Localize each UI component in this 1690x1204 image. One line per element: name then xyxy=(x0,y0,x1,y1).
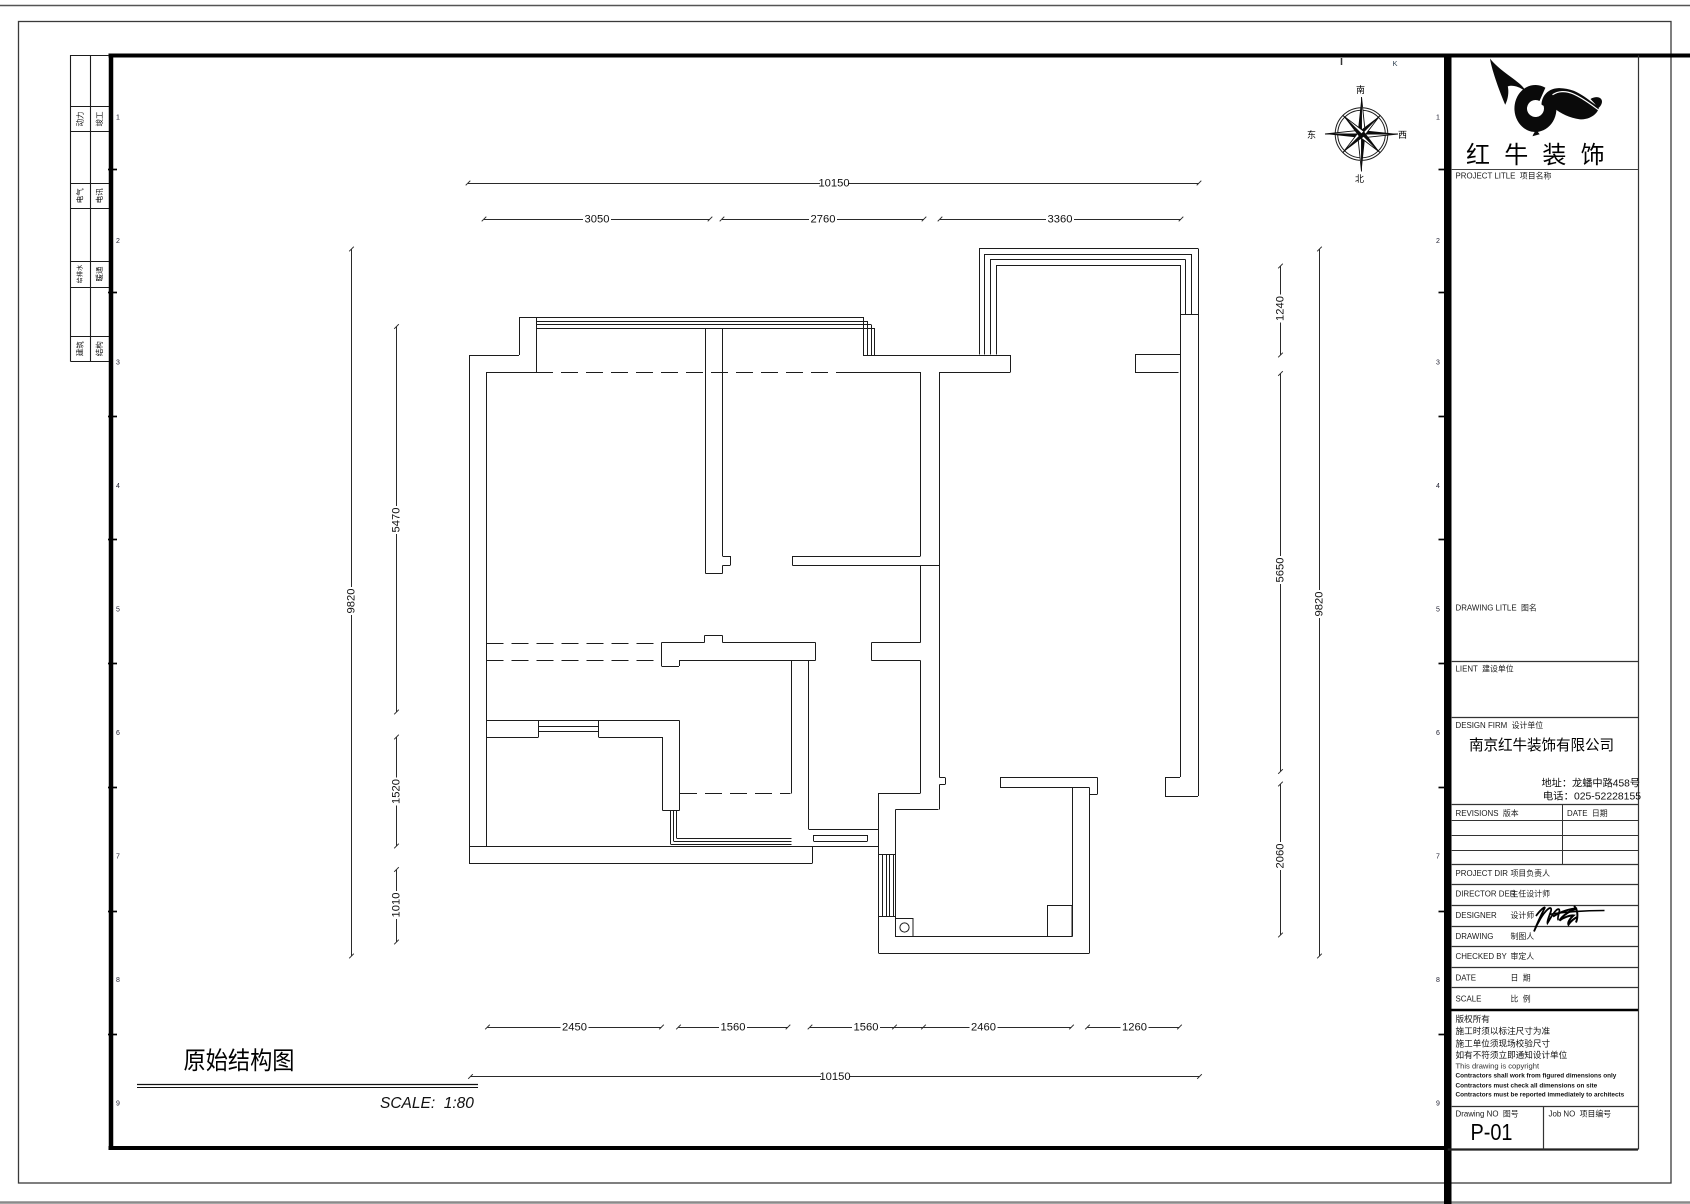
svg-text:制图人: 制图人 xyxy=(1511,931,1535,941)
svg-text:7: 7 xyxy=(116,854,120,861)
svg-text:给排水: 给排水 xyxy=(76,264,84,283)
svg-text:Drawing NO 图号: Drawing NO 图号 xyxy=(1456,1110,1519,1119)
svg-text:DRAWING: DRAWING xyxy=(1456,932,1494,941)
svg-text:9: 9 xyxy=(1436,1101,1440,1108)
svg-text:5: 5 xyxy=(1436,607,1440,614)
svg-text:Contractors must check all dim: Contractors must check all dimensions on… xyxy=(1456,1083,1598,1090)
svg-text:日 期: 日 期 xyxy=(1511,974,1531,983)
svg-text:8: 8 xyxy=(116,977,120,984)
svg-text:2760: 2760 xyxy=(811,214,836,226)
svg-text:2450: 2450 xyxy=(562,1022,587,1034)
svg-text:6: 6 xyxy=(116,730,120,737)
svg-text:9820: 9820 xyxy=(346,589,358,614)
svg-text:10150: 10150 xyxy=(819,1071,850,1083)
svg-text:2460: 2460 xyxy=(971,1022,996,1034)
svg-text:8: 8 xyxy=(1436,977,1440,984)
svg-text:1560: 1560 xyxy=(854,1022,879,1034)
svg-text:1520: 1520 xyxy=(391,779,403,804)
svg-text:DIRECTOR DER: DIRECTOR DER xyxy=(1456,890,1516,899)
svg-text:项目负责人: 项目负责人 xyxy=(1511,868,1551,878)
svg-text:1260: 1260 xyxy=(1122,1022,1147,1034)
svg-text:This drawing is copyright: This drawing is copyright xyxy=(1456,1062,1540,1071)
svg-text:比 例: 比 例 xyxy=(1511,994,1531,1004)
svg-text:K: K xyxy=(1393,59,1398,68)
svg-text:Job NO 项目编号: Job NO 项目编号 xyxy=(1549,1109,1612,1119)
svg-text:动力: 动力 xyxy=(74,112,84,127)
svg-text:施工单位须现场校验尺寸: 施工单位须现场校验尺寸 xyxy=(1456,1038,1551,1049)
svg-text:2: 2 xyxy=(1436,238,1440,245)
svg-text:建筑: 建筑 xyxy=(74,341,84,356)
svg-text:3050: 3050 xyxy=(585,214,610,226)
svg-text:1: 1 xyxy=(116,115,120,122)
svg-text:SCALE: 1:80: SCALE: 1:80 xyxy=(380,1095,474,1112)
svg-text:结构: 结构 xyxy=(94,341,104,356)
svg-text:LIENT 建设单位: LIENT 建设单位 xyxy=(1456,664,1514,674)
svg-text:审定人: 审定人 xyxy=(1511,951,1535,961)
svg-text:SCALE: SCALE xyxy=(1456,995,1482,1004)
svg-text:电气: 电气 xyxy=(74,188,84,203)
svg-text:南: 南 xyxy=(1356,84,1365,95)
svg-text:暖通: 暖通 xyxy=(94,266,104,281)
svg-text:9: 9 xyxy=(116,1101,120,1108)
svg-text:电讯: 电讯 xyxy=(94,188,104,203)
svg-text:版权所有: 版权所有 xyxy=(1456,1013,1491,1024)
svg-text:如有不符须立即通知设计单位: 如有不符须立即通知设计单位 xyxy=(1456,1049,1568,1060)
svg-text:DESIGN FIRM 设计单位: DESIGN FIRM 设计单位 xyxy=(1456,720,1544,730)
svg-text:设计师: 设计师 xyxy=(1511,910,1535,920)
svg-text:DRAWING LITLE 图名: DRAWING LITLE 图名 xyxy=(1456,603,1537,613)
svg-text:10150: 10150 xyxy=(818,178,849,190)
svg-text:5: 5 xyxy=(116,607,120,614)
svg-text:7: 7 xyxy=(1436,854,1440,861)
svg-text:4: 4 xyxy=(1436,483,1440,490)
svg-text:DESIGNER: DESIGNER xyxy=(1456,911,1498,920)
svg-text:DATE: DATE xyxy=(1456,974,1476,983)
svg-text:主任设计师: 主任设计师 xyxy=(1511,889,1551,899)
svg-text:1560: 1560 xyxy=(721,1022,746,1034)
svg-text:5650: 5650 xyxy=(1275,558,1287,583)
svg-text:竣工: 竣工 xyxy=(94,111,104,126)
svg-text:Contractors must be reported i: Contractors must be reported immediately… xyxy=(1456,1092,1625,1099)
svg-text:PROJECT LITLE 项目名称: PROJECT LITLE 项目名称 xyxy=(1456,171,1552,181)
svg-text:5470: 5470 xyxy=(391,508,403,533)
svg-text:9820: 9820 xyxy=(1314,592,1326,617)
svg-text:Contractors shall work from fi: Contractors shall work from figured dime… xyxy=(1456,1073,1617,1080)
svg-text:DATE 日期: DATE 日期 xyxy=(1567,809,1608,818)
svg-text:PROJECT DIR: PROJECT DIR xyxy=(1456,869,1509,878)
svg-text:1: 1 xyxy=(1436,115,1440,122)
svg-text:地址：龙蟠中路458号: 地址：龙蟠中路458号 xyxy=(1542,777,1641,790)
svg-text:1010: 1010 xyxy=(391,893,403,918)
svg-text:4: 4 xyxy=(116,483,120,490)
svg-text:3360: 3360 xyxy=(1048,214,1073,226)
svg-text:CHECKED BY: CHECKED BY xyxy=(1456,952,1508,961)
svg-text:北: 北 xyxy=(1355,174,1364,184)
svg-text:1240: 1240 xyxy=(1275,296,1287,321)
svg-text:原始结构图: 原始结构图 xyxy=(184,1047,295,1075)
svg-text:3: 3 xyxy=(116,360,120,367)
svg-text:REVISIONS 版本: REVISIONS 版本 xyxy=(1456,808,1519,818)
svg-text:2060: 2060 xyxy=(1275,844,1287,869)
svg-text:西: 西 xyxy=(1398,130,1407,140)
svg-text:6: 6 xyxy=(1436,730,1440,737)
svg-text:东: 东 xyxy=(1307,129,1316,140)
svg-text:P-01: P-01 xyxy=(1471,1119,1513,1145)
svg-text:3: 3 xyxy=(1436,360,1440,367)
svg-text:电话：025-52228155: 电话：025-52228155 xyxy=(1543,790,1641,803)
svg-text:南京红牛装饰有限公司: 南京红牛装饰有限公司 xyxy=(1469,737,1614,754)
svg-text:红牛装饰: 红牛装饰 xyxy=(1466,142,1619,169)
svg-text:2: 2 xyxy=(116,238,120,245)
svg-text:施工时须以标注尺寸为准: 施工时须以标注尺寸为准 xyxy=(1456,1025,1551,1036)
